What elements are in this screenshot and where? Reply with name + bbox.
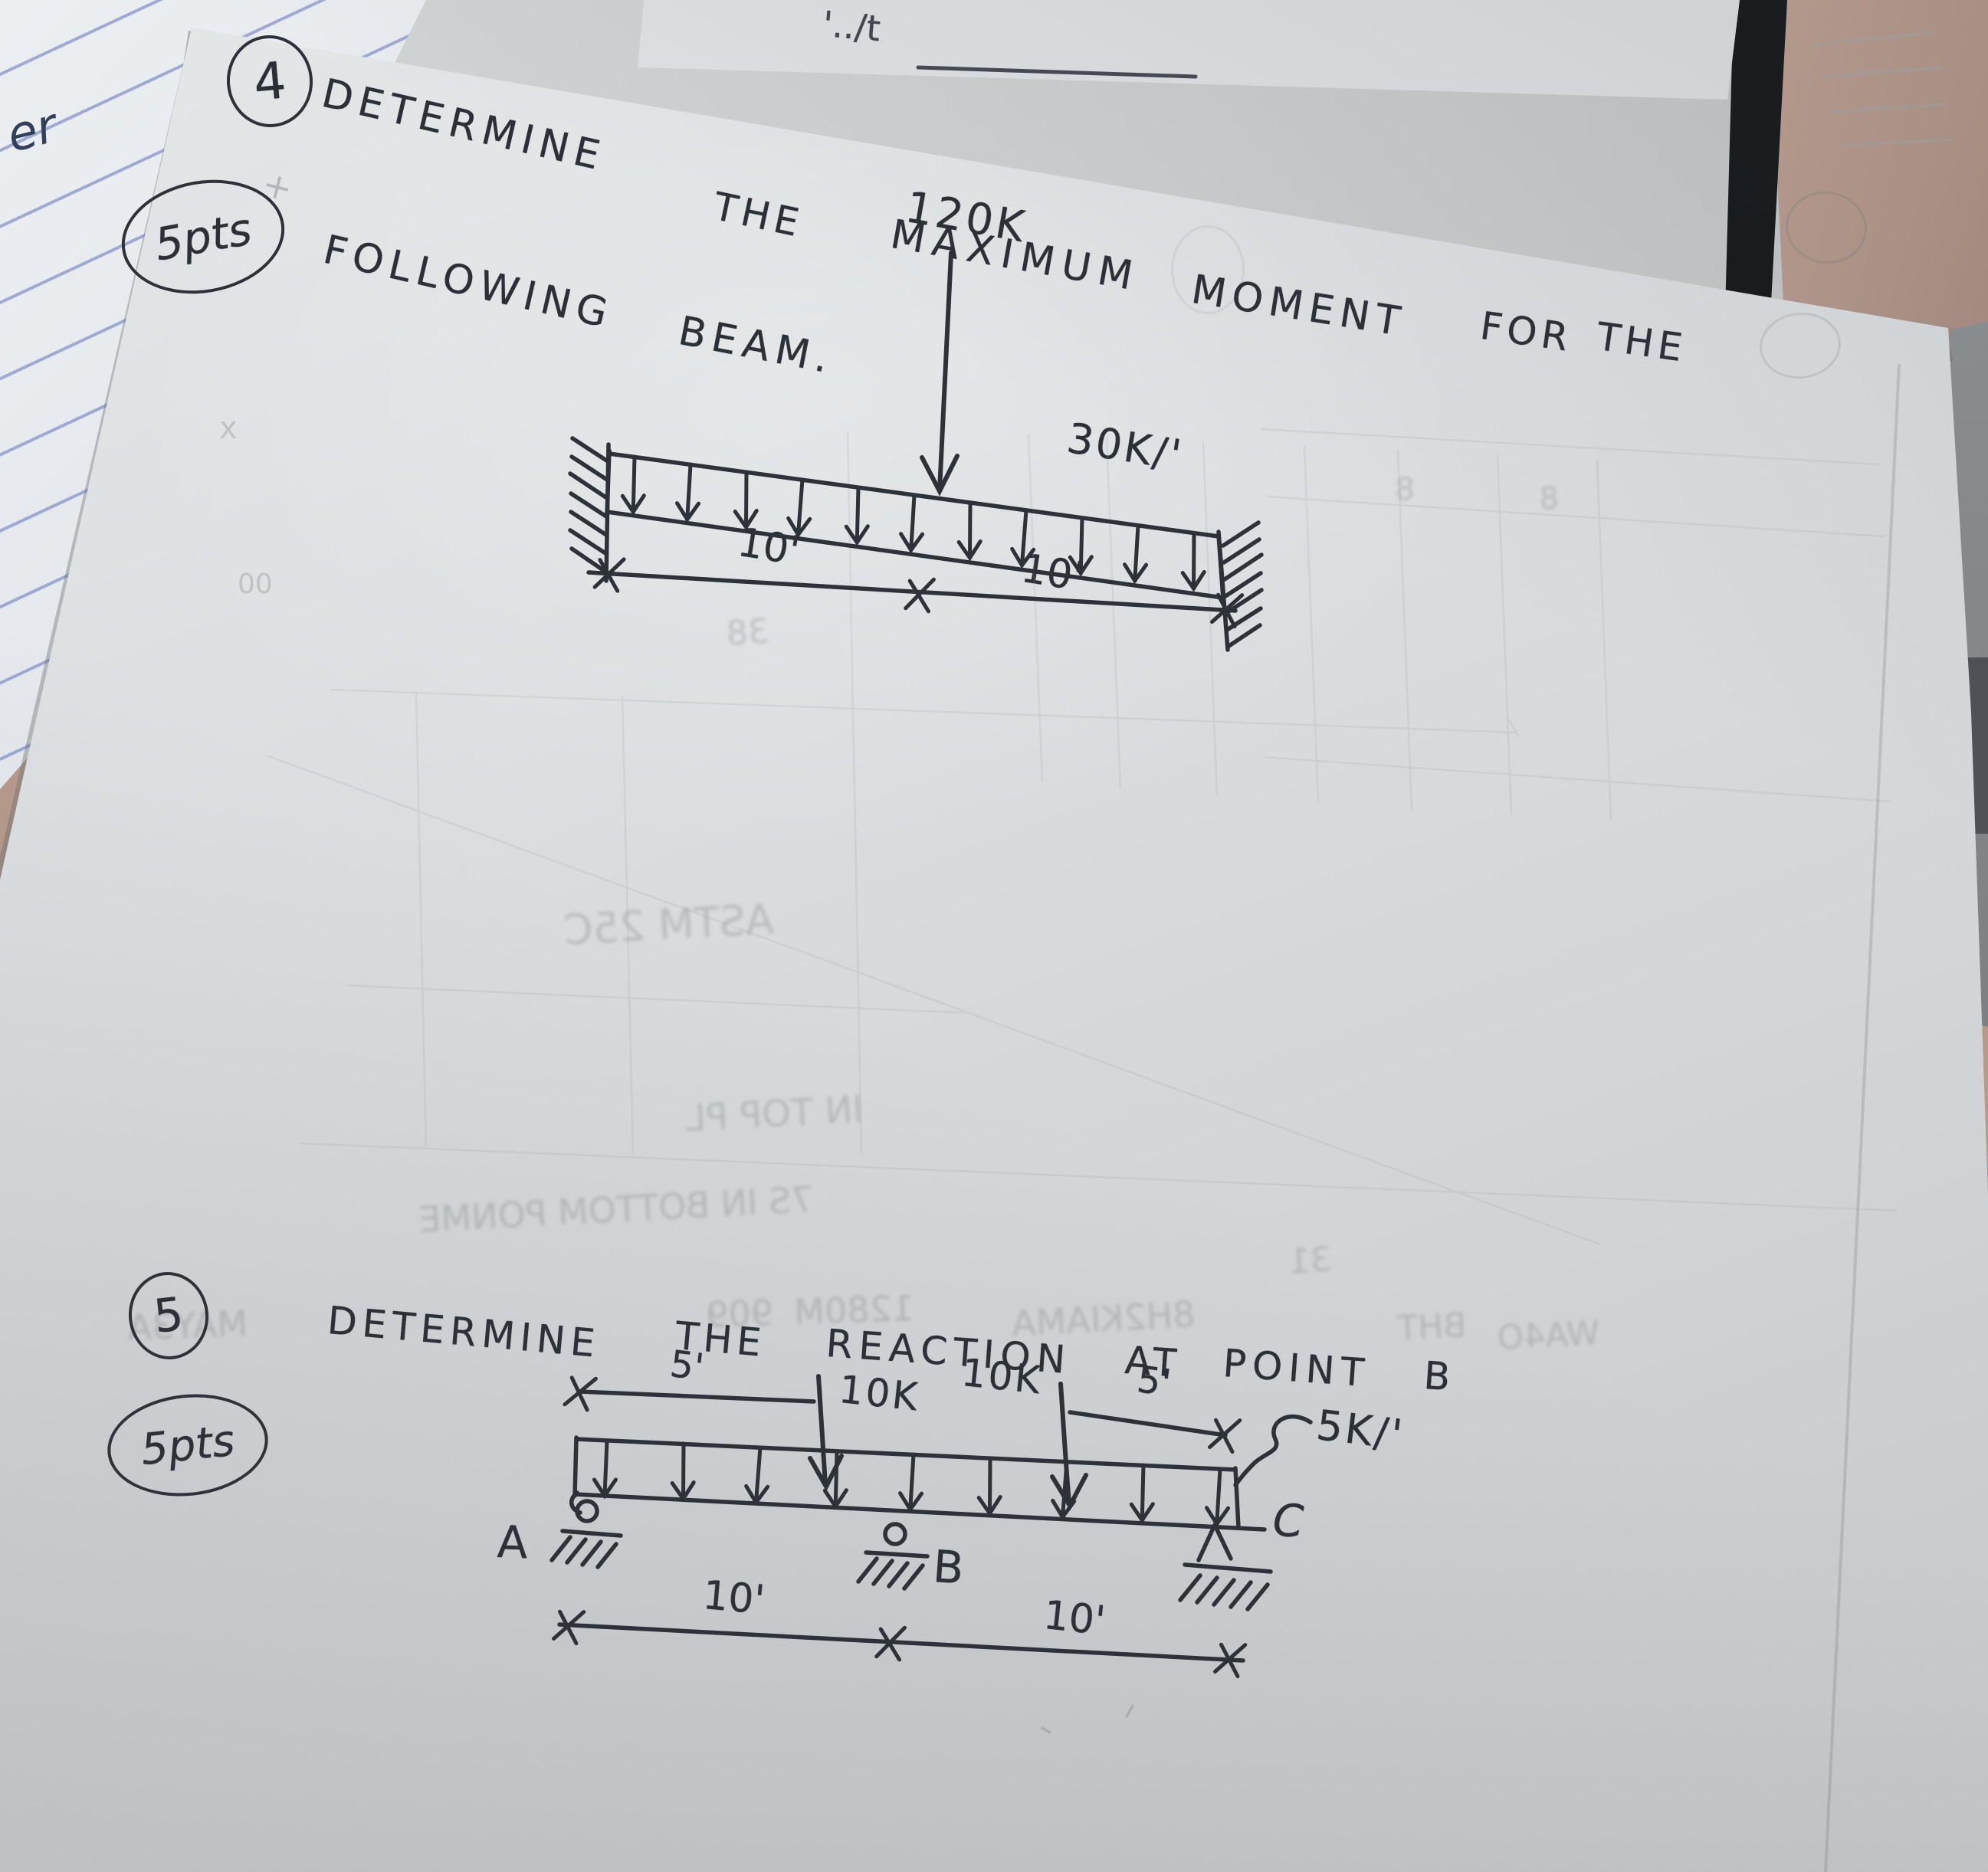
problem4-number: 4: [251, 51, 289, 112]
beam2-load1-label: 10K: [837, 1367, 922, 1420]
ghost-text: WA4O: [1496, 1313, 1600, 1358]
beam2-dim-label: 10': [1042, 1592, 1107, 1644]
beam2-load2-label: 10K: [960, 1350, 1045, 1403]
beam2-dim-label: 5': [1134, 1358, 1173, 1405]
problem4-points: 5pts: [151, 203, 256, 271]
beam1-dim-label: 10': [735, 520, 803, 575]
ghost-text: 31: [1288, 1240, 1333, 1282]
beam2-supportB-label: B: [931, 1540, 965, 1595]
p5-title-word: B: [1422, 1353, 1452, 1399]
pencil-mark: x: [219, 411, 238, 446]
problem5-points: 5pts: [139, 1415, 237, 1474]
beam2-dim-label: 5': [668, 1343, 706, 1389]
ghost-text: 8: [1396, 472, 1415, 507]
beam1-dim-label: 10': [1019, 546, 1087, 601]
beam2-supportC-label: C: [1272, 1494, 1305, 1547]
top-sheet-scribble: '../t: [821, 3, 882, 49]
beam2-supportA-label: A: [497, 1516, 529, 1569]
problem5-number: 5: [151, 1287, 185, 1344]
ghost-text: BHT: [1396, 1306, 1468, 1349]
pencil-mark: 00: [238, 569, 273, 600]
beam2-dim-label: 10': [701, 1572, 766, 1624]
ghost-text: 8: [1540, 481, 1559, 516]
photo-of-homework-page: er '../t MAY3A 909 1280M 8H2KIAMA BHT WA…: [0, 0, 1988, 1872]
ghost-text: 38: [725, 611, 770, 654]
